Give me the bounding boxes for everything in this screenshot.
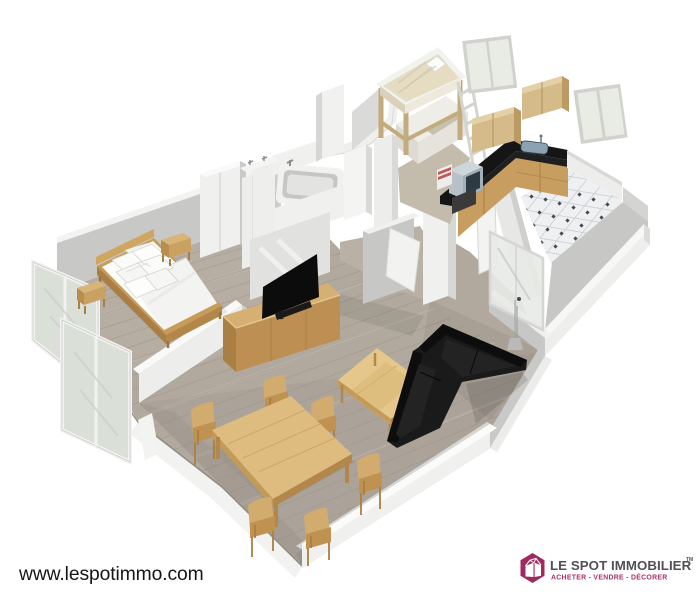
svg-text:TM: TM <box>686 557 693 563</box>
svg-text:www.lespotimmo.com: www.lespotimmo.com <box>18 564 204 585</box>
svg-text:ACHETER - VENDRE - DÉCORER: ACHETER - VENDRE - DÉCORER <box>551 573 668 582</box>
svg-text:LE SPOT IMMOBILIER: LE SPOT IMMOBILIER <box>550 558 692 573</box>
